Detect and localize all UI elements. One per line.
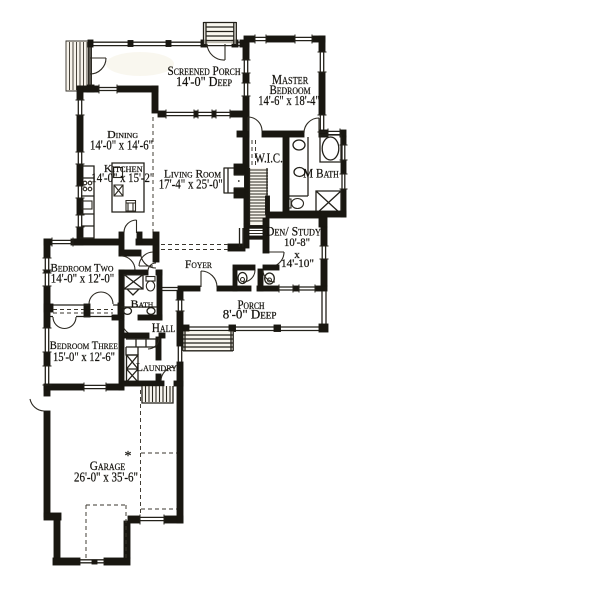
svg-text:14'-0" Deep: 14'-0" Deep (176, 74, 232, 89)
svg-text:10'-8": 10'-8" (284, 235, 310, 249)
svg-text:14'-0" x 12'-0": 14'-0" x 12'-0" (51, 272, 114, 286)
svg-text:14'-0" x 14'-6": 14'-0" x 14'-6" (90, 139, 153, 154)
svg-text:14'-10": 14'-10" (281, 256, 314, 270)
svg-text:W.I.C.: W.I.C. (255, 151, 283, 166)
svg-text:26'-0" x 35'-6": 26'-0" x 35'-6" (74, 470, 138, 485)
svg-text:Bath: Bath (131, 299, 154, 311)
svg-text:M Bath: M Bath (303, 165, 339, 180)
svg-text:14'-6" x 18'-4": 14'-6" x 18'-4" (258, 94, 320, 109)
svg-text:17'-4" x 25'-0": 17'-4" x 25'-0" (159, 177, 223, 192)
svg-text:Foyer: Foyer (185, 257, 213, 271)
svg-text:15'-0" x 12'-6": 15'-0" x 12'-6" (53, 350, 115, 364)
svg-text:14'-0" x 15'-2": 14'-0" x 15'-2" (91, 171, 154, 185)
svg-text:8'-0" Deep: 8'-0" Deep (223, 308, 277, 322)
svg-text:*: * (125, 449, 132, 464)
